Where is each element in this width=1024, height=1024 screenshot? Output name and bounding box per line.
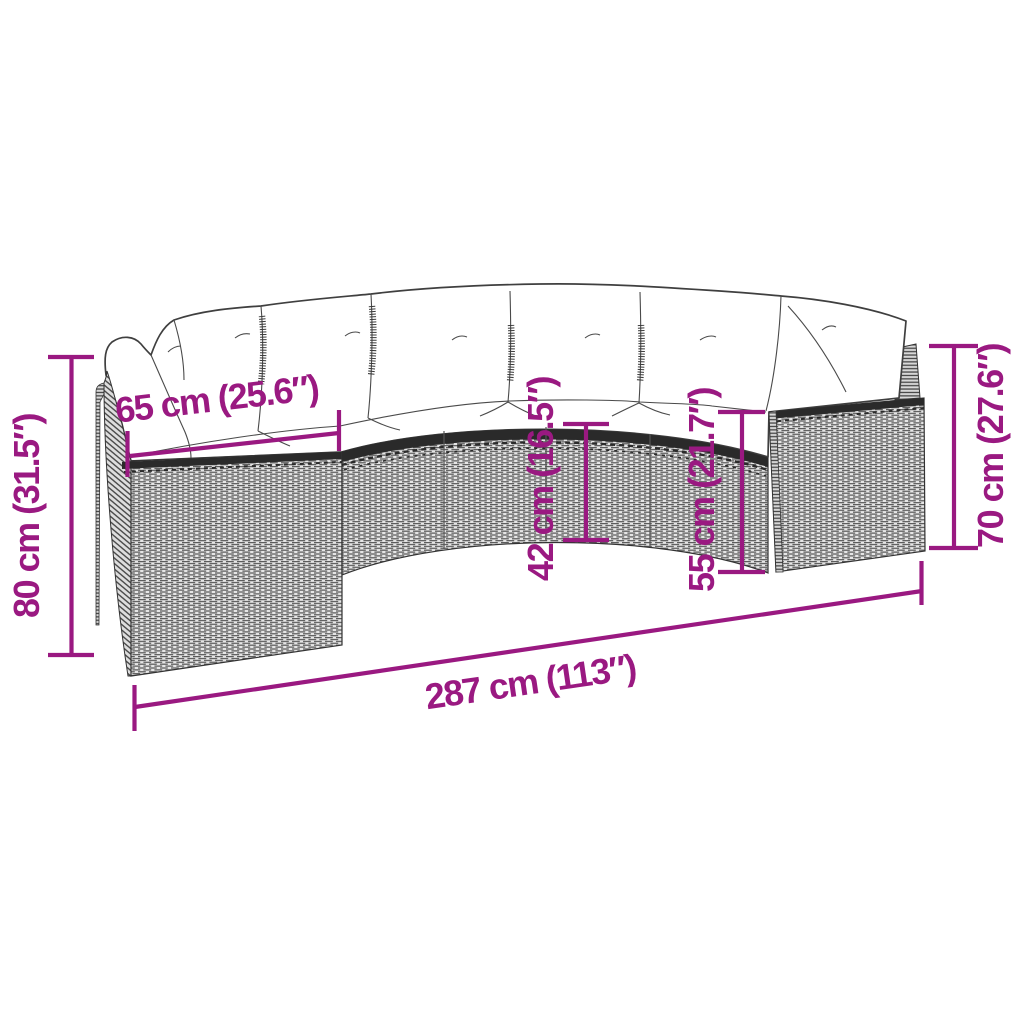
svg-text:80 cm (31.5″): 80 cm (31.5″) <box>6 414 47 618</box>
svg-text:55 cm (21.7″): 55 cm (21.7″) <box>681 388 722 592</box>
svg-text:42 cm (16.5″): 42 cm (16.5″) <box>520 377 561 581</box>
svg-text:70 cm (27.6″): 70 cm (27.6″) <box>970 344 1011 548</box>
